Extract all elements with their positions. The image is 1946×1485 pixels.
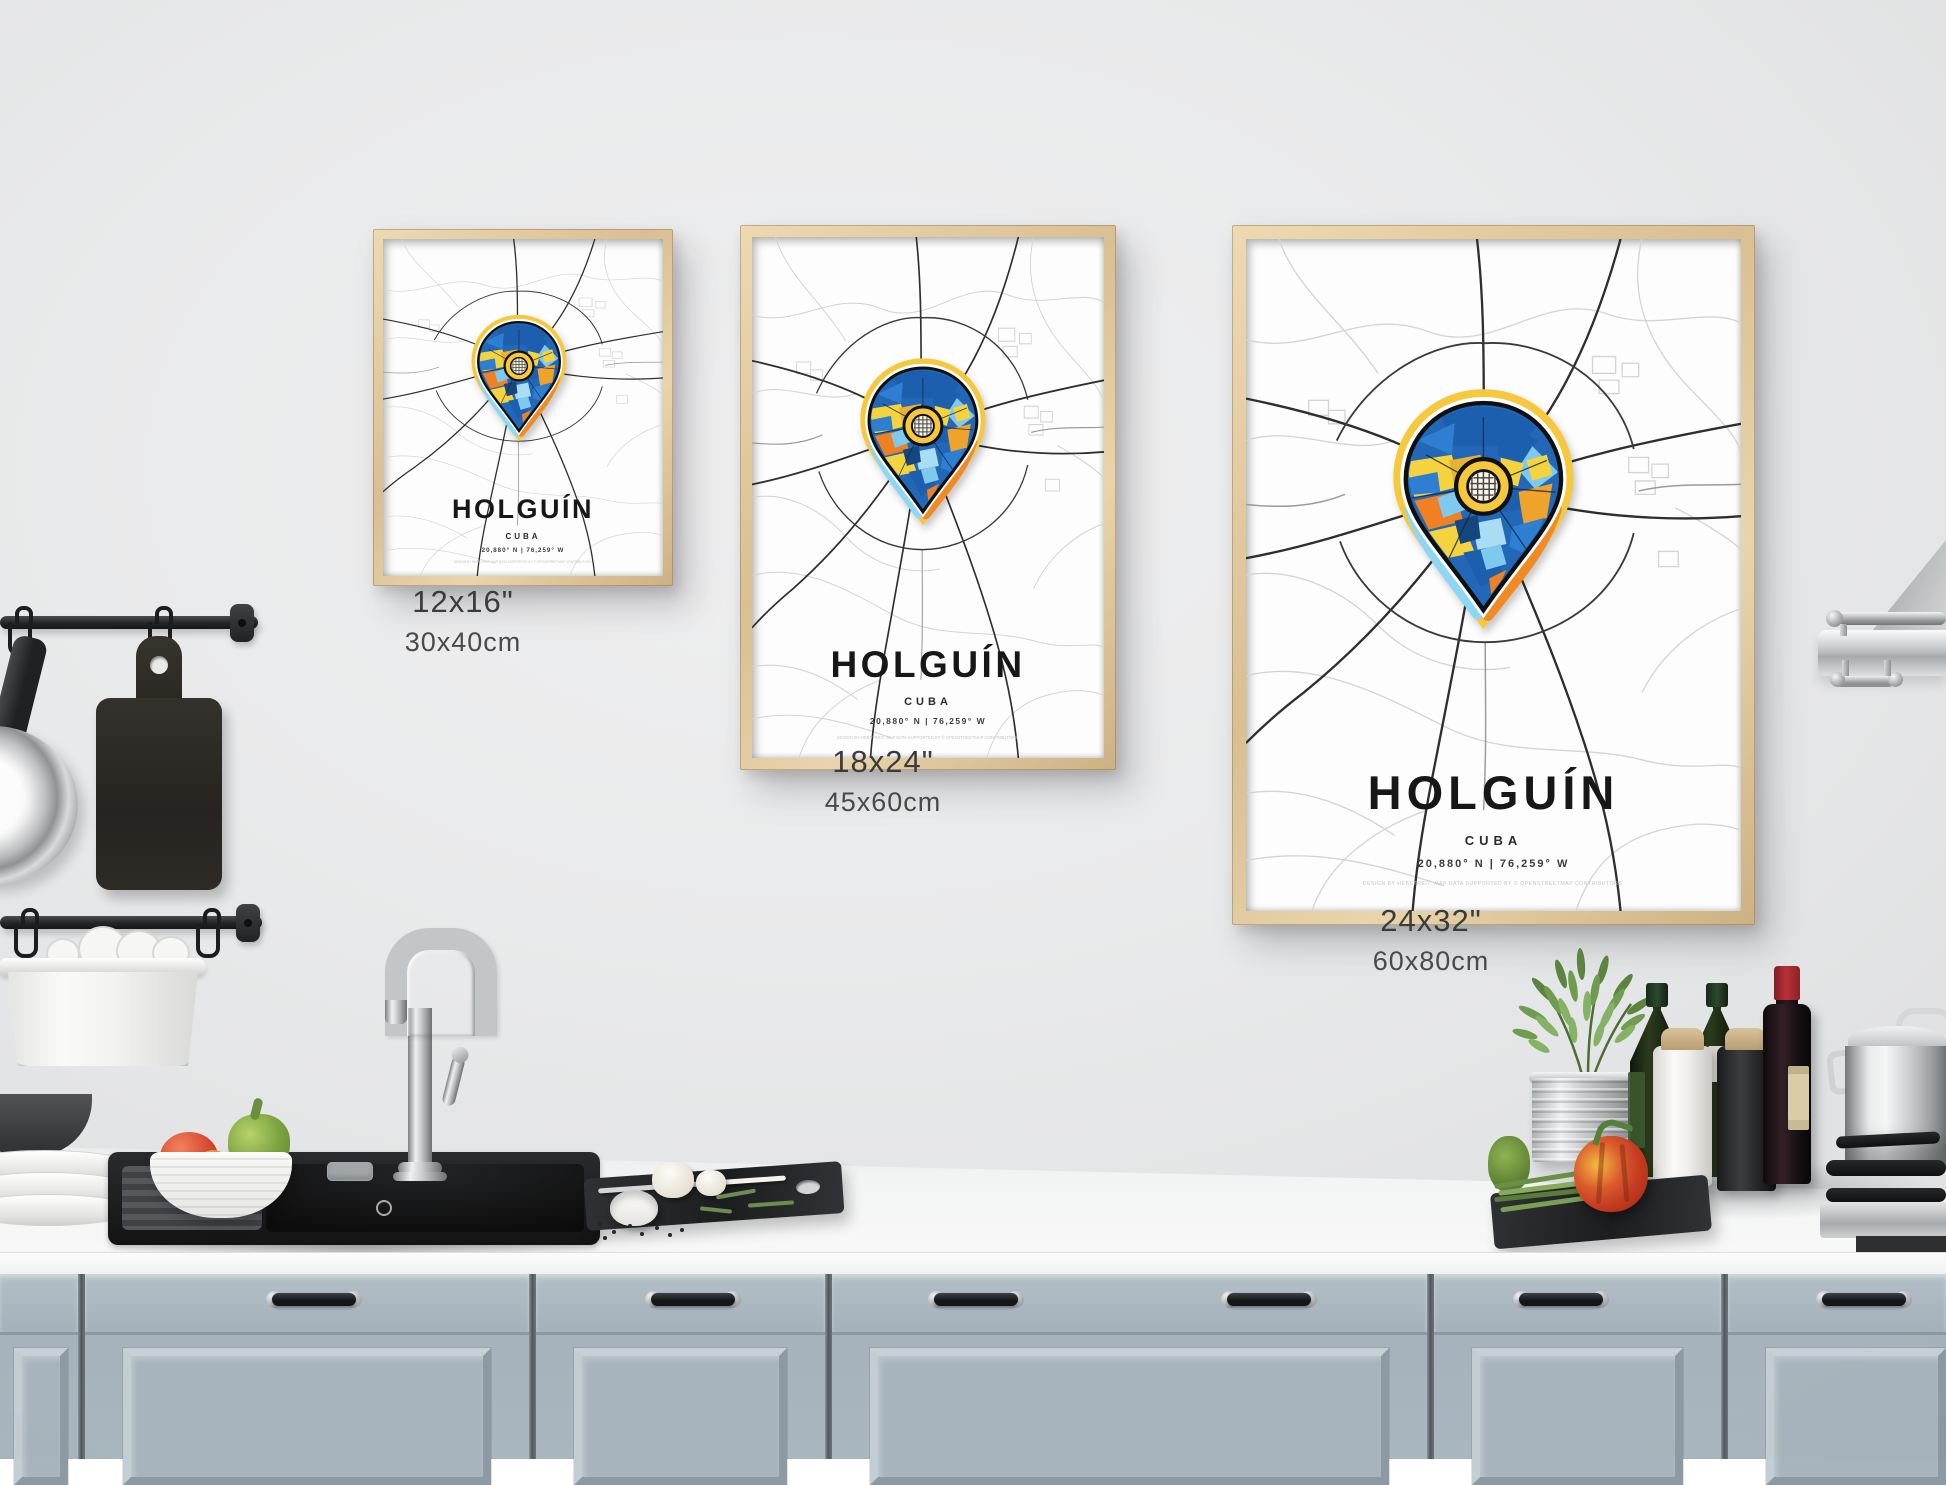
poster-frame-12x16: HOLGUÍN CUBA 20,880° N | 76,259° W DESIG… (373, 229, 673, 586)
poster-print-12x16: HOLGUÍN CUBA 20,880° N | 76,259° W DESIG… (383, 239, 663, 576)
range-hood-rail (1832, 612, 1946, 625)
size-centimeters: 30x40cm (333, 627, 593, 658)
range-hood-lower-post-right (1884, 660, 1891, 676)
oil-bottle-label (1628, 1072, 1645, 1148)
cabinet-door-panel (123, 1348, 491, 1485)
cabinet-gap (78, 1274, 85, 1459)
garlic-bulb (696, 1170, 726, 1196)
size-inches: 12x16" (333, 584, 593, 620)
wall-rail-lower-bracket (236, 904, 260, 942)
poster-coordinates: 20,880° N | 76,259° W (752, 716, 1104, 726)
drawer-handle (266, 1290, 362, 1308)
poster-credit: DESIGN BY HEBSTREIT. MAP DATA SUPPORTED … (1246, 881, 1741, 887)
drawer-handle (1221, 1290, 1317, 1308)
peppercorn (598, 1222, 602, 1226)
wall-rail-lower (0, 916, 262, 929)
cabinet-door-panel (870, 1348, 1389, 1485)
size-centimeters: 45x60cm (753, 787, 1013, 818)
garlic-bulb (652, 1162, 694, 1198)
gas-grate-bar (1826, 1160, 1946, 1176)
poster-country: CUBA (1246, 833, 1741, 848)
drawer-handle (1816, 1290, 1912, 1308)
cabinet-unit (0, 1274, 78, 1459)
peppercorn (680, 1228, 684, 1232)
poster-country: CUBA (752, 696, 1104, 708)
salt-grinder-white (1653, 1046, 1712, 1186)
cabinet-door-panel (574, 1348, 787, 1485)
drawer-handle (645, 1290, 741, 1308)
poster-print-18x24: HOLGUÍN CUBA 20,880° N | 76,259° W DESIG… (752, 237, 1104, 758)
faucet-flange (393, 1172, 447, 1181)
poster-title: HOLGUÍN (383, 494, 663, 525)
range-hood-lower-post-left (1842, 660, 1849, 676)
poster-coordinates: 20,880° N | 76,259° W (1246, 858, 1741, 870)
oil-bottle-cap (1706, 983, 1728, 1007)
peppercorn (640, 1232, 644, 1236)
poster-caption: HOLGUÍN CUBA 20,880° N | 76,259° W DESIG… (752, 644, 1104, 740)
gas-hob-deck (1820, 1202, 1946, 1238)
kitchen-scene: HOLGUÍN CUBA 20,880° N | 76,259° W DESIG… (0, 0, 1946, 1459)
cabinet-drawer (832, 1274, 1427, 1332)
map-pin-icon (849, 352, 997, 530)
peppercorn (628, 1224, 632, 1228)
poster-coordinates: 20,880° N | 76,259° W (383, 547, 663, 554)
cabinet-gap (825, 1274, 832, 1459)
cabinet-drawer (0, 1274, 78, 1332)
faucet-spout (385, 1000, 407, 1024)
pinch-bowl (610, 1190, 658, 1226)
cabinet-door-panel (1472, 1348, 1683, 1485)
cabinet-gap (529, 1274, 536, 1459)
utensil-bucket (4, 972, 202, 1066)
cabinet-gap (1427, 1274, 1434, 1459)
range-hood-band (1818, 630, 1946, 676)
cabinet-unit (832, 1274, 1427, 1459)
poster-credit: DESIGN BY HEBSTREIT. MAP DATA SUPPORTED … (752, 735, 1104, 740)
oil-bottle-cap (1646, 983, 1668, 1007)
bucket-hook-right (196, 924, 220, 958)
poster-frame-24x32: HOLGUÍN CUBA 20,880° N | 76,259° W DESIG… (1232, 225, 1755, 925)
map-pin-icon (463, 310, 575, 445)
range-hood-rail-post (1840, 624, 1847, 636)
gas-grate-bar (1826, 1188, 1946, 1202)
grinder-wood-cap (1725, 1028, 1766, 1050)
frying-pan (0, 726, 78, 884)
grinder-wood-cap (1661, 1028, 1704, 1050)
cabinet-door-panel (1766, 1348, 1946, 1485)
counter-front-edge (0, 1252, 1946, 1275)
faucet-lever (441, 1055, 466, 1107)
poster-country: CUBA (383, 532, 663, 541)
stock-pot (1845, 1046, 1946, 1168)
peppercorn (655, 1226, 659, 1230)
cabinet-gap (1721, 1274, 1728, 1459)
size-inches: 18x24" (753, 744, 1013, 780)
poster-title: HOLGUÍN (1246, 765, 1741, 820)
drawer-handle (928, 1290, 1024, 1308)
wall-rail-upper (0, 616, 258, 629)
dark-bowl (0, 1094, 92, 1156)
poster-frame-18x24: HOLGUÍN CUBA 20,880° N | 76,259° W DESIG… (740, 225, 1116, 770)
poster-print-24x32: HOLGUÍN CUBA 20,880° N | 76,259° W DESIG… (1246, 239, 1741, 911)
size-label-18x24: 18x24" 45x60cm (753, 744, 1013, 818)
peppercorn (603, 1236, 607, 1240)
poster-title: HOLGUÍN (752, 644, 1104, 686)
soap-dish (327, 1162, 373, 1181)
hanging-cutting-board (96, 698, 222, 890)
cabinet-door-panel (14, 1348, 68, 1485)
wall-rail-upper-bracket (230, 604, 254, 642)
wine-bottle-capsule (1774, 966, 1800, 1000)
size-label-12x16: 12x16" 30x40cm (333, 584, 593, 658)
drawer-handle (1513, 1290, 1609, 1308)
size-inches: 24x32" (1301, 903, 1561, 939)
poster-credit: DESIGN BY HEBSTREIT. MAP DATA SUPPORTED … (383, 560, 663, 564)
sink-logo (376, 1200, 392, 1216)
peppercorn (612, 1230, 616, 1234)
poster-caption: HOLGUÍN CUBA 20,880° N | 76,259° W DESIG… (1246, 765, 1741, 887)
hanging-board-hole (150, 656, 168, 674)
peppercorn (668, 1233, 672, 1237)
bucket-hook-left (14, 924, 38, 958)
poster-caption: HOLGUÍN CUBA 20,880° N | 76,259° W DESIG… (383, 494, 663, 564)
wine-bottle-label (1788, 1066, 1809, 1130)
map-pin-icon (1377, 380, 1590, 636)
